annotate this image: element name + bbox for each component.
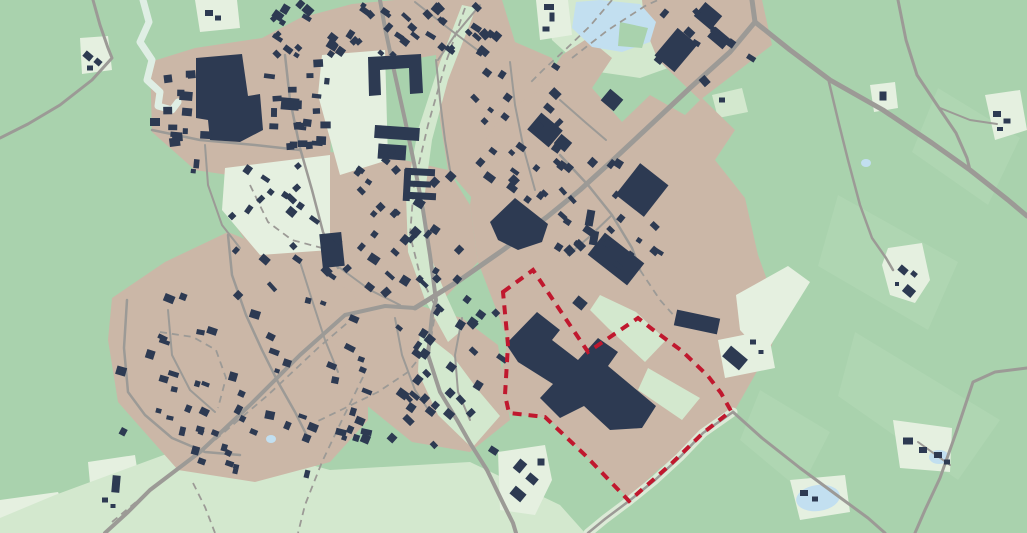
- map-viewport[interactable]: [0, 0, 1027, 533]
- map-canvas[interactable]: [0, 0, 1027, 533]
